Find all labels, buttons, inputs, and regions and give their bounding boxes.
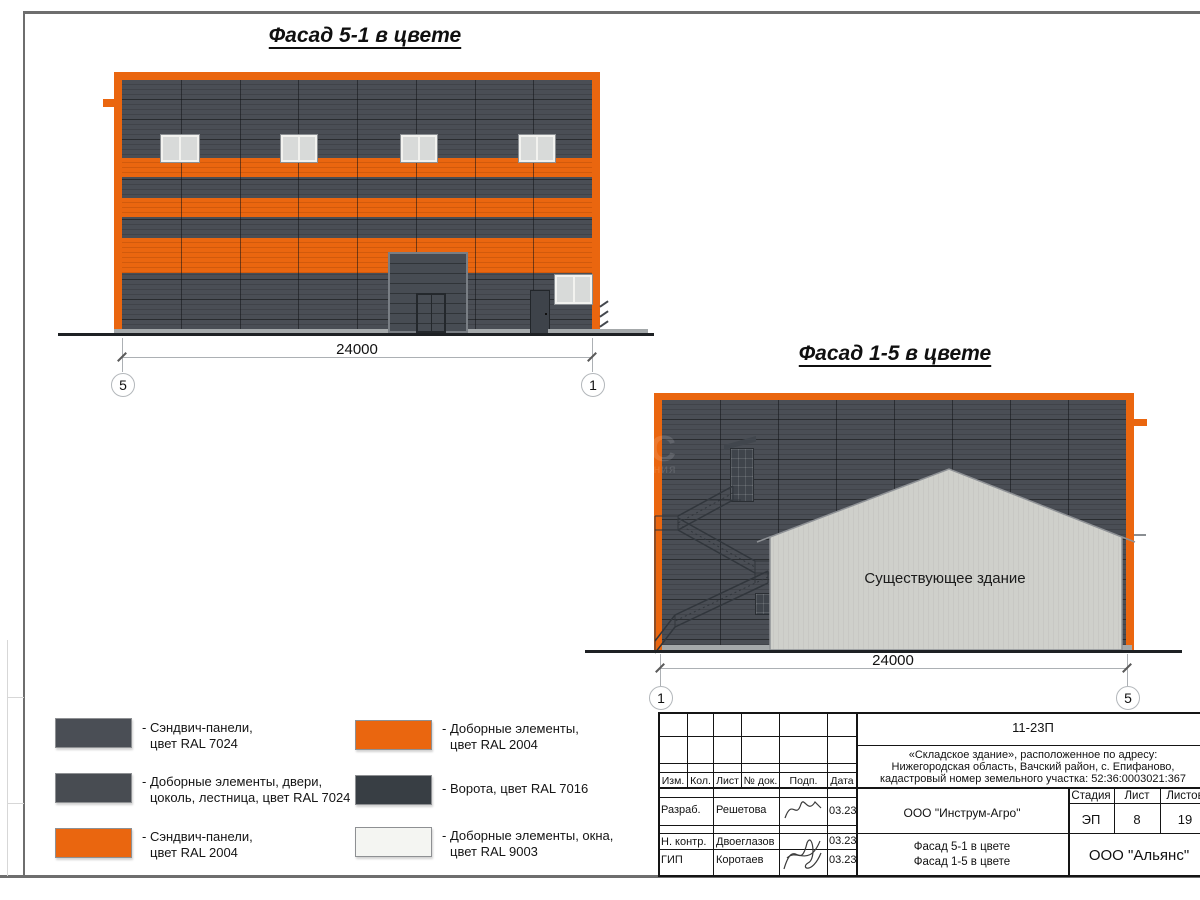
stage-label: Стадия bbox=[1068, 790, 1114, 802]
titleblock-line bbox=[658, 787, 1200, 789]
legend-swatch bbox=[355, 720, 432, 750]
window-divider bbox=[536, 137, 538, 160]
downpipe-bracket bbox=[599, 320, 608, 327]
row-name: Двоеглазов bbox=[716, 836, 774, 848]
col-header-data: Дата bbox=[828, 775, 856, 787]
titleblock-line bbox=[658, 875, 1200, 877]
frame-top-line bbox=[23, 11, 1200, 14]
frame-margin-line bbox=[7, 803, 24, 804]
row-date: 03.23 bbox=[829, 835, 857, 847]
legend-swatch bbox=[355, 775, 432, 805]
titleblock-line bbox=[856, 745, 1200, 746]
frame-margin-line bbox=[7, 697, 24, 698]
facade-5-1-wall bbox=[122, 80, 592, 333]
axis-bubble-5: 5 bbox=[111, 373, 135, 397]
sheet-name-line2: Фасад 1-5 в цвете bbox=[856, 856, 1068, 868]
signature bbox=[779, 830, 825, 875]
row-date: 03.23 bbox=[829, 854, 857, 866]
legend-swatch bbox=[355, 827, 432, 857]
frame-margin-line bbox=[7, 640, 8, 876]
legend-label: - Сэндвич-панели, цвет RAL 2004 bbox=[142, 829, 253, 861]
door-handle bbox=[545, 313, 547, 315]
gate-wicket-door bbox=[416, 293, 446, 333]
col-header-list: Лист bbox=[714, 775, 741, 787]
legend-label: - Сэндвич-панели, цвет RAL 7024 bbox=[142, 720, 253, 752]
signature bbox=[781, 794, 825, 824]
gutter-outlet bbox=[103, 99, 115, 107]
dimension-value: 24000 bbox=[843, 652, 943, 669]
panel-joint bbox=[298, 80, 299, 333]
existing-building-label: Существующее здание bbox=[820, 570, 1070, 587]
org-name: ООО "Инструм-Агро" bbox=[856, 806, 1068, 820]
extension-line bbox=[660, 654, 661, 686]
titleblock-line bbox=[1068, 803, 1200, 804]
listov-label: Листов bbox=[1160, 790, 1200, 802]
titleblock-line bbox=[827, 712, 828, 876]
col-header-izm: Изм. bbox=[659, 775, 687, 787]
row-name: Коротаев bbox=[716, 854, 764, 866]
list-label: Лист bbox=[1114, 790, 1160, 802]
doc-number: 11-23П bbox=[856, 720, 1200, 735]
col-header-doc: № док. bbox=[742, 775, 779, 787]
row-role: Н. контр. bbox=[661, 836, 706, 848]
wicket-divider bbox=[431, 295, 432, 331]
legend-label: - Доборные элементы, цвет RAL 2004 bbox=[442, 721, 579, 753]
facade-5-1-title: Фасад 5-1 в цвете bbox=[230, 24, 500, 48]
list-value: 8 bbox=[1114, 812, 1160, 827]
titleblock-line bbox=[658, 712, 1200, 714]
project-line3: кадастровый номер земельного участка: 52… bbox=[856, 773, 1200, 785]
legend-swatch bbox=[55, 828, 132, 858]
col-header-podp: Подп. bbox=[780, 775, 827, 787]
legend-label: - Доборные элементы, окна, цвет RAL 9003 bbox=[442, 828, 613, 860]
window-divider bbox=[573, 277, 575, 302]
facade-5-1-building bbox=[114, 72, 600, 333]
panel-joint bbox=[181, 80, 182, 333]
downpipe-bracket bbox=[599, 310, 608, 317]
window-divider bbox=[418, 137, 420, 160]
drawing-sheet: { "colors": { "accent_orange": "#EA660F"… bbox=[0, 0, 1200, 900]
company-name: ООО "Альянс" bbox=[1068, 847, 1200, 864]
project-line1: «Складское здание», расположенное по адр… bbox=[856, 749, 1200, 761]
legend-swatch bbox=[55, 773, 132, 803]
titleblock-line bbox=[658, 833, 1200, 834]
titleblock-line bbox=[713, 712, 714, 876]
legend-label: - Ворота, цвет RAL 7016 bbox=[442, 781, 588, 797]
row-date: 03.23 bbox=[829, 805, 857, 817]
project-line2: Нижегородская область, Вачский район, с.… bbox=[856, 761, 1200, 773]
window bbox=[519, 135, 555, 162]
window bbox=[401, 135, 437, 162]
panel-joint bbox=[240, 80, 241, 333]
axis-bubble-1: 1 bbox=[649, 686, 673, 710]
row-role: ГИП bbox=[661, 854, 683, 866]
facade-1-5-title: Фасад 1-5 в цвете bbox=[760, 342, 1030, 366]
existing-building bbox=[753, 464, 1143, 654]
stage-value: ЭП bbox=[1068, 812, 1114, 827]
frame-left-line bbox=[23, 11, 25, 877]
panel-joint bbox=[475, 80, 476, 333]
ground-line bbox=[58, 333, 654, 336]
window bbox=[281, 135, 317, 162]
downpipe-bracket bbox=[599, 300, 608, 307]
entrance-door bbox=[530, 290, 550, 335]
gutter-outlet bbox=[1134, 419, 1147, 426]
col-header-kol: Кол. bbox=[688, 775, 713, 787]
legend-label: - Доборные элементы, двери, цоколь, лест… bbox=[142, 774, 350, 806]
row-role: Разраб. bbox=[661, 804, 701, 816]
window-divider bbox=[298, 137, 300, 160]
titleblock-line bbox=[658, 712, 660, 877]
sheet-name-line1: Фасад 5-1 в цвете bbox=[856, 841, 1068, 853]
window bbox=[555, 275, 592, 304]
dimension-value: 24000 bbox=[307, 341, 407, 358]
row-name: Решетова bbox=[716, 804, 766, 816]
panel-joint bbox=[357, 80, 358, 333]
gate bbox=[388, 252, 468, 333]
axis-bubble-1: 1 bbox=[581, 373, 605, 397]
window-divider bbox=[179, 137, 181, 160]
extension-line bbox=[1127, 654, 1128, 686]
listov-value: 19 bbox=[1160, 812, 1200, 827]
legend-swatch bbox=[55, 718, 132, 748]
window bbox=[161, 135, 199, 162]
axis-bubble-5: 5 bbox=[1116, 686, 1140, 710]
